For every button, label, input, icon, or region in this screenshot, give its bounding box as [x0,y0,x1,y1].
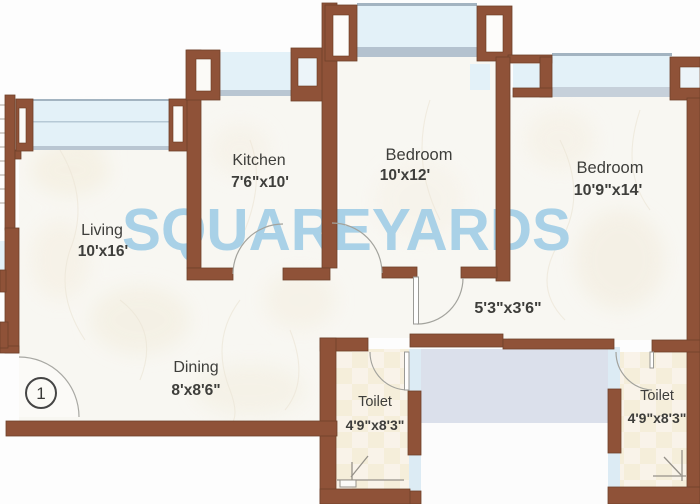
svg-text:Bedroom: Bedroom [386,146,453,164]
svg-text:10'9"x14': 10'9"x14' [574,182,643,199]
svg-text:5'3"x3'6": 5'3"x3'6" [474,300,541,317]
svg-text:Toilet: Toilet [640,388,674,404]
svg-text:Dining: Dining [173,359,218,376]
svg-text:4'9"x8'3": 4'9"x8'3" [628,410,687,426]
svg-text:7'6"x10': 7'6"x10' [231,174,289,191]
svg-text:10'x16': 10'x16' [78,243,128,260]
svg-text:Kitchen: Kitchen [232,152,285,169]
svg-text:Living: Living [81,222,123,239]
svg-text:4'9"x8'3": 4'9"x8'3" [346,417,405,433]
svg-text:10'x12': 10'x12' [380,167,430,184]
svg-text:1: 1 [36,384,45,403]
svg-text:Bedroom: Bedroom [577,159,644,177]
svg-text:Toilet: Toilet [358,394,392,410]
svg-text:8'x8'6": 8'x8'6" [171,382,220,399]
